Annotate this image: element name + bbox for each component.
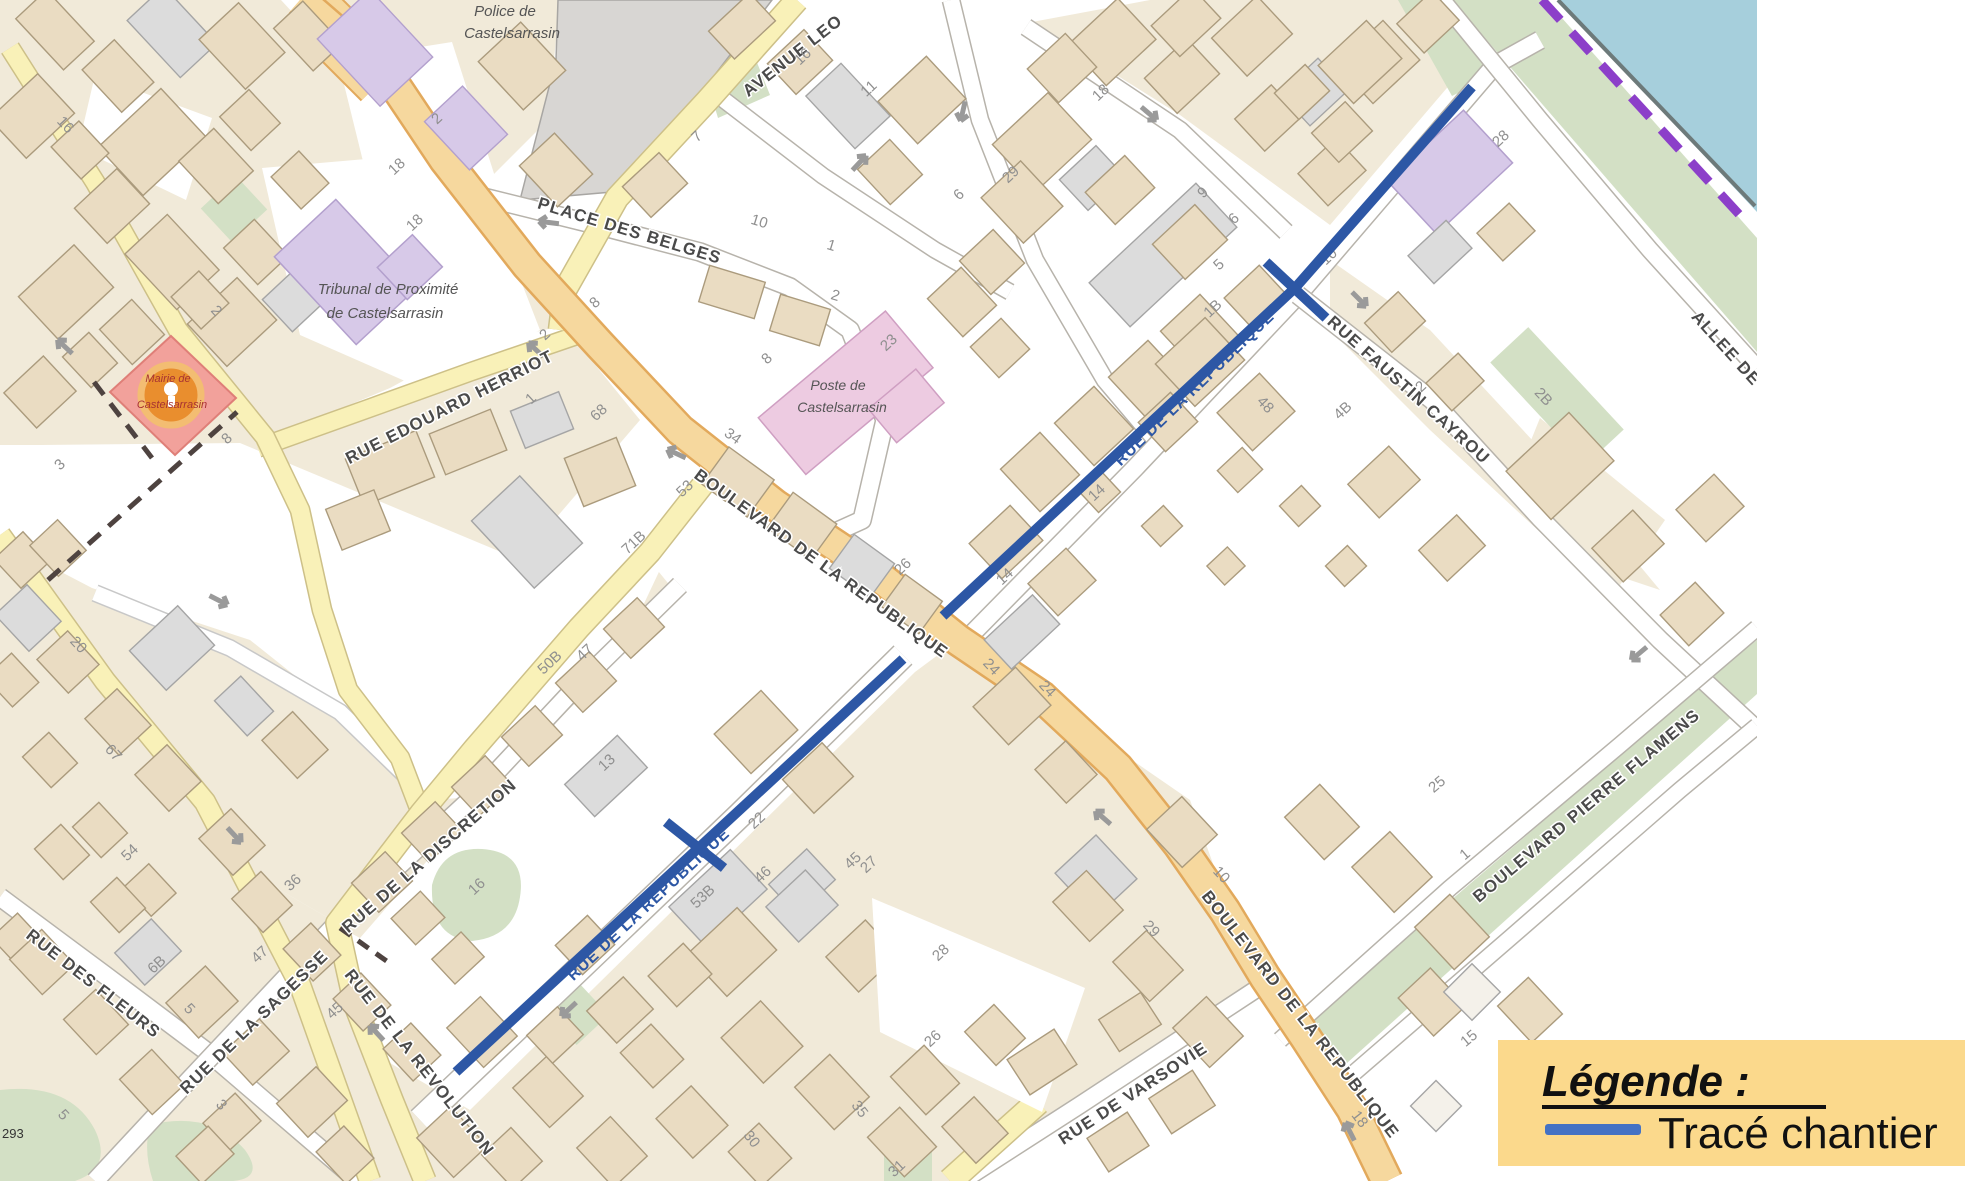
svg-text:Poste de: Poste de	[810, 377, 865, 393]
svg-text:de Castelsarrasin: de Castelsarrasin	[327, 305, 444, 322]
svg-text:293: 293	[2, 1126, 24, 1141]
svg-text:Castelsarrasin: Castelsarrasin	[464, 25, 560, 42]
svg-text:Légende :: Légende :	[1542, 1057, 1750, 1106]
svg-text:Castelsarrasin: Castelsarrasin	[797, 399, 887, 415]
svg-text:Castelsarrasin: Castelsarrasin	[137, 399, 207, 411]
svg-text:Tribunal de Proximité: Tribunal de Proximité	[318, 281, 459, 298]
svg-text:Mairie de: Mairie de	[145, 373, 190, 385]
svg-text:Police de: Police de	[474, 3, 536, 20]
svg-text:Tracé chantier: Tracé chantier	[1658, 1109, 1938, 1158]
